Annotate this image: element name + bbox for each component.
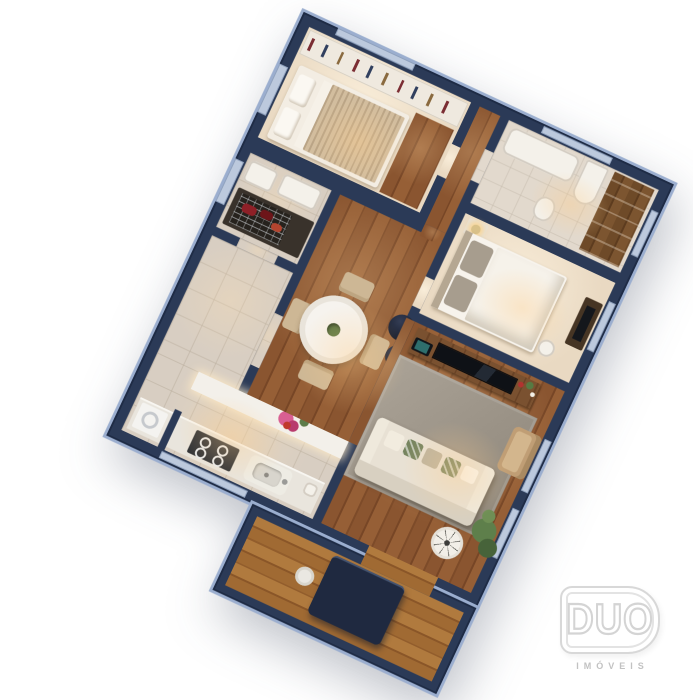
washer-door [139, 409, 162, 432]
grill-meat [259, 208, 275, 221]
tablet-screen [414, 340, 430, 354]
sofa-pillow [440, 456, 463, 479]
logo-box: DUO [560, 586, 660, 654]
faucet [281, 478, 289, 486]
grill-meat [240, 202, 258, 217]
rack-decor [529, 392, 535, 398]
sofa-pillow [402, 438, 425, 461]
sofa-pillow [383, 429, 406, 452]
bathtub [501, 126, 582, 184]
balcony-stool [292, 564, 317, 589]
rack-decor [525, 381, 535, 391]
side-table-hub [443, 539, 451, 547]
sofa-pillow [459, 465, 479, 485]
grill-meat [270, 222, 284, 234]
toilet [529, 193, 558, 224]
rack-decor [517, 381, 525, 389]
logo-duo: DUO IMÓVEIS [560, 586, 660, 671]
logo-subtext: IMÓVEIS [560, 661, 660, 671]
tablet [411, 337, 434, 357]
table-plant [325, 321, 343, 339]
logo-text: DUO [566, 596, 653, 644]
sofa-pillow [421, 447, 444, 470]
bath-fixture [242, 159, 279, 193]
bin [302, 481, 320, 499]
